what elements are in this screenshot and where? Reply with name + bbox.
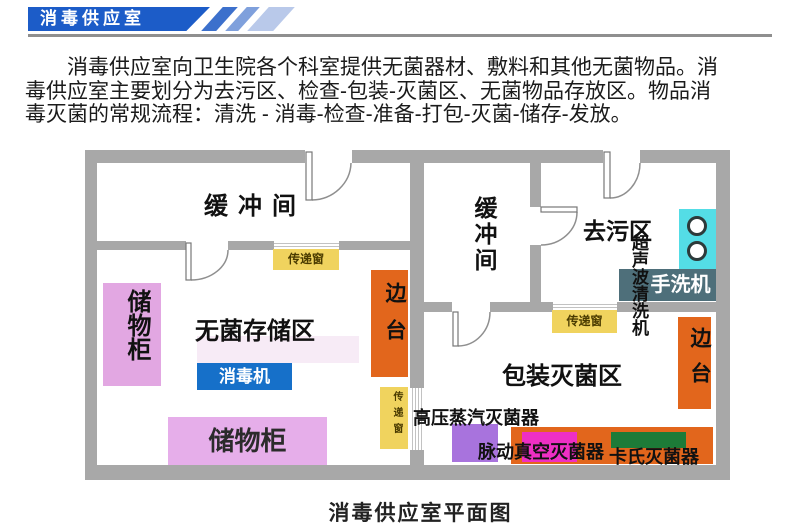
room-label-buffer-right: 缓冲间 (467, 196, 501, 274)
ultrasonic-cleaner-label: 超声波清洗机 (626, 234, 651, 336)
intro-paragraph: 消毒供应室向卫生院各个科室提供无菌器材、敷料和其他无菌物品。消 毒供应室主要划分… (25, 56, 777, 127)
room-label-packaging: 包装灭菌区 (462, 356, 662, 391)
plan-caption: 消毒供应室平面图 (98, 497, 743, 527)
room-label-buffer-left: 缓冲间 (175, 186, 335, 221)
autoclave-label: 高压蒸汽灭菌器 (413, 404, 539, 430)
header-banner: 消毒供应室 (28, 7, 210, 31)
header-divider (28, 34, 772, 37)
pulse-vacuum-label: 脉动真空灭菌器 (478, 438, 604, 464)
intro-line-2: 毒供应室主要划分为去污区、检查-包装-灭菌区、无菌物品存放区。物品消 (25, 80, 777, 104)
cassette-sterilizer-label: 卡氏灭菌器 (609, 443, 699, 469)
intro-line-1: 消毒供应室向卫生院各个科室提供无菌器材、敷料和其他无菌物品。消 (25, 56, 777, 80)
page: 消毒供应室 消毒供应室向卫生院各个科室提供无菌器材、敷料和其他无菌物品。消 毒供… (0, 0, 800, 531)
floor-plan: 缓冲间 缓冲间 无菌存储区 去污区 包装灭菌区 储物柜 消毒机 储物柜 边台 传… (85, 150, 730, 480)
intro-line-3: 毒灭菌的常规流程：清洗 - 消毒-检查-准备-打包-灭菌-储存-发放。 (25, 103, 777, 127)
room-label-sterile-storage: 无菌存储区 (155, 311, 355, 346)
